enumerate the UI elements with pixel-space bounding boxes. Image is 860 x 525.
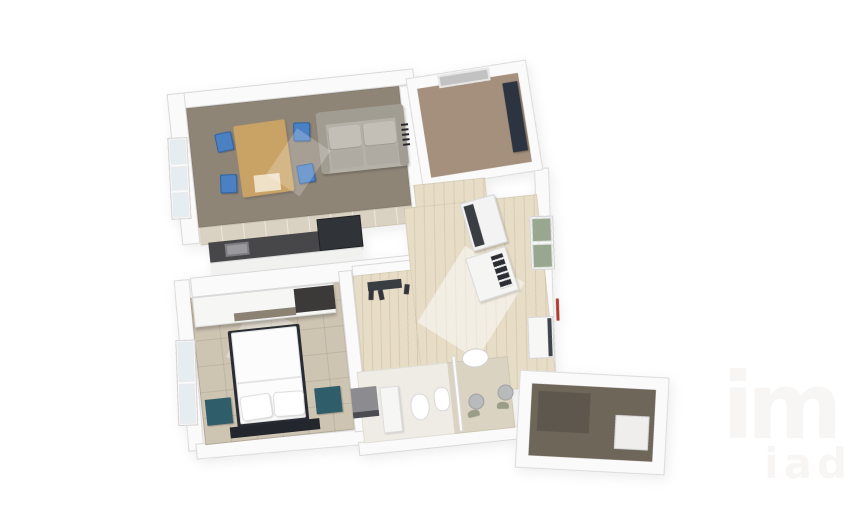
watermark-logo: im (722, 368, 852, 446)
pillow (273, 390, 306, 417)
stairwell-window-green (529, 215, 555, 270)
window-pane (169, 139, 186, 164)
entry-landing (515, 370, 670, 476)
kitchen-cooktop-oven (316, 215, 363, 251)
window-pane (531, 218, 552, 243)
nightstand (314, 386, 343, 415)
entry-door (527, 316, 554, 359)
floorplan-render: im iad (0, 0, 860, 484)
dining-chair (214, 131, 235, 153)
living-window (167, 137, 191, 220)
watermark-text: iad (764, 446, 852, 482)
window-pane (532, 243, 553, 268)
shoes (368, 290, 373, 300)
sofa-seat (330, 148, 364, 169)
pillow (239, 392, 274, 422)
window-pane (179, 383, 196, 424)
laundry-appliance (350, 386, 379, 419)
bedroom-window (175, 339, 198, 426)
entry-step (614, 415, 650, 451)
brand-watermark: im iad (722, 368, 852, 482)
sofa-seat (365, 144, 399, 165)
window-pane (171, 166, 188, 191)
sofa-cushion (328, 124, 362, 149)
entry-door-frame (547, 318, 552, 356)
plant (497, 402, 509, 409)
nightstand (205, 397, 234, 426)
red-accent-marker (556, 299, 560, 321)
console-detail (491, 253, 513, 289)
shoes (404, 284, 410, 294)
kitchen-sink (225, 242, 250, 257)
closet-recess (294, 285, 336, 313)
dining-chair (220, 174, 238, 194)
sofa (315, 104, 409, 175)
entry-door-mat (537, 391, 591, 434)
window-pane (177, 342, 194, 383)
window-pane (172, 192, 189, 217)
office-room (405, 59, 543, 189)
sofa-cushion (363, 121, 397, 146)
apartment-plan (150, 36, 709, 488)
